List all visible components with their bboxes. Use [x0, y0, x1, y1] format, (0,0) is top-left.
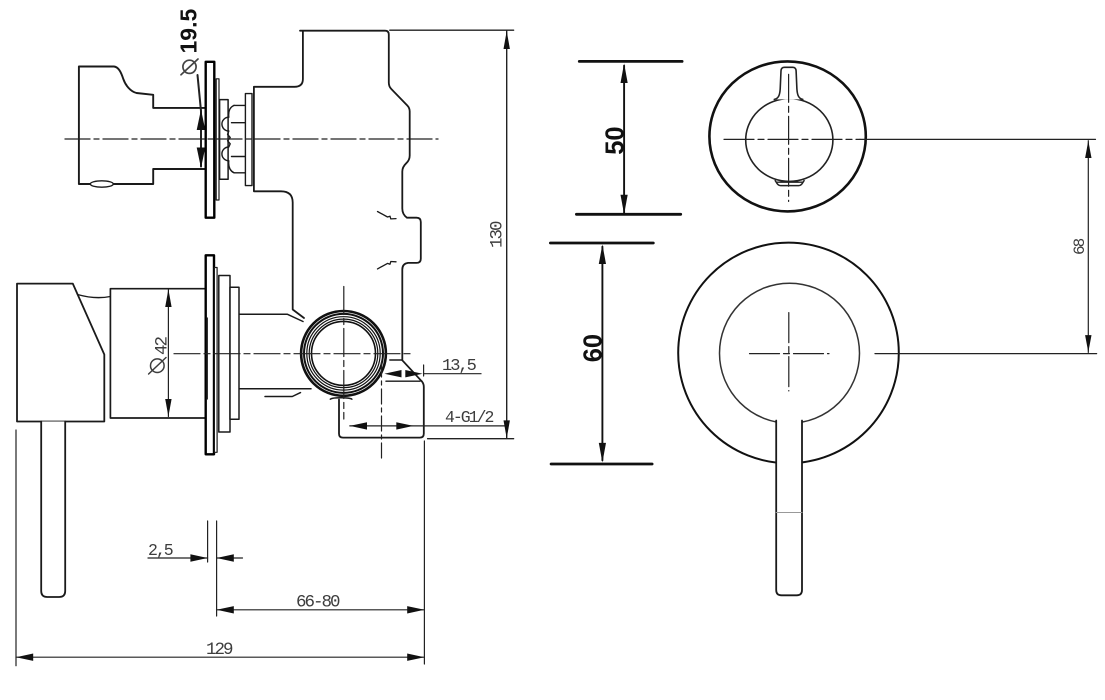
svg-text:60: 60	[580, 334, 608, 362]
svg-text:4-G1/2: 4-G1/2	[445, 408, 494, 427]
svg-text:19.5: 19.5	[176, 9, 202, 54]
svg-text:13,5: 13,5	[442, 357, 477, 376]
svg-text:42: 42	[153, 336, 173, 355]
svg-text:2,5: 2,5	[148, 541, 173, 560]
svg-text:129: 129	[206, 640, 233, 660]
svg-text:66-80: 66-80	[296, 593, 340, 613]
svg-text:68: 68	[1071, 238, 1089, 255]
svg-text:50: 50	[602, 126, 630, 154]
svg-text:130: 130	[488, 221, 508, 248]
